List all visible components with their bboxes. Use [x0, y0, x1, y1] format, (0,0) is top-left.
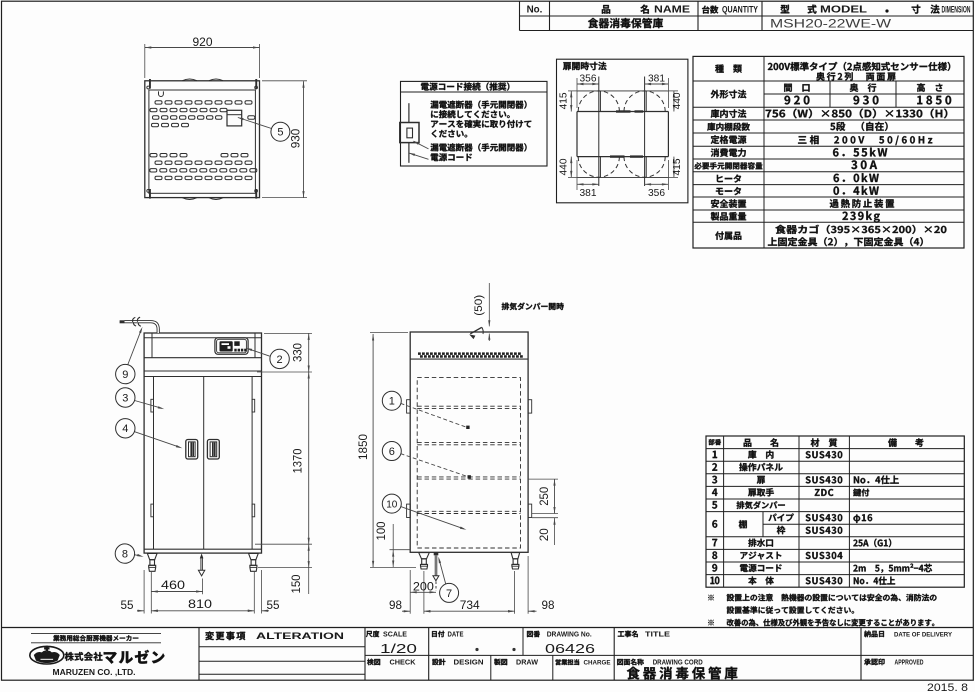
- svg-text:3: 3: [122, 392, 128, 404]
- svg-text:415: 415: [671, 158, 683, 175]
- svg-text:440: 440: [557, 158, 569, 175]
- svg-text:MARUZEN CO. ,LTD.: MARUZEN CO. ,LTD.: [53, 668, 136, 677]
- svg-text:356: 356: [648, 187, 665, 199]
- svg-text:6: 6: [389, 446, 395, 458]
- svg-text:250: 250: [537, 486, 551, 505]
- svg-text:SCALE: SCALE: [383, 630, 407, 639]
- svg-text:DIMENSION: DIMENSION: [942, 5, 971, 15]
- svg-text:CHARGE: CHARGE: [584, 660, 612, 667]
- svg-text:06426: 06426: [545, 641, 595, 656]
- svg-text:ALTERATION: ALTERATION: [256, 631, 344, 642]
- svg-text:QUANTITY: QUANTITY: [722, 5, 758, 15]
- svg-text:8: 8: [122, 549, 128, 561]
- svg-text:20: 20: [537, 528, 551, 541]
- svg-text:DATE OF DELIVERY: DATE OF DELIVERY: [894, 632, 952, 639]
- svg-text:No.: No.: [527, 5, 543, 16]
- svg-text:9: 9: [122, 369, 128, 381]
- svg-text:CHECK: CHECK: [390, 658, 417, 667]
- svg-text:2015. 8: 2015. 8: [927, 682, 968, 692]
- svg-text:MSH20-22WE-W: MSH20-22WE-W: [770, 17, 891, 31]
- svg-text:1/20: 1/20: [380, 641, 417, 656]
- svg-text:NAME: NAME: [654, 4, 690, 16]
- svg-text:DRAWING CORD: DRAWING CORD: [653, 658, 703, 667]
- svg-text:DESIGN: DESIGN: [454, 658, 484, 667]
- svg-text:7: 7: [446, 588, 452, 600]
- svg-text:330: 330: [291, 343, 305, 362]
- svg-text:55: 55: [121, 598, 134, 612]
- svg-text:1850: 1850: [356, 434, 370, 460]
- svg-text:381: 381: [580, 187, 597, 199]
- svg-text:356: 356: [580, 73, 597, 85]
- svg-text:930: 930: [288, 128, 302, 148]
- svg-text:415: 415: [557, 92, 569, 109]
- svg-text:1370: 1370: [291, 448, 305, 473]
- svg-text:DRAW: DRAW: [516, 658, 538, 667]
- svg-text:100: 100: [374, 521, 388, 540]
- svg-text:810: 810: [188, 597, 212, 611]
- svg-text:DATE: DATE: [448, 630, 464, 639]
- svg-text:440: 440: [671, 92, 683, 109]
- svg-text:98: 98: [542, 598, 555, 612]
- svg-text:(50): (50): [473, 295, 485, 316]
- svg-text:1: 1: [389, 396, 395, 408]
- svg-text:2: 2: [277, 354, 283, 366]
- svg-text:55: 55: [267, 598, 280, 612]
- svg-text:200: 200: [413, 580, 434, 594]
- svg-text:98: 98: [389, 598, 402, 612]
- svg-text:APPROVED: APPROVED: [895, 658, 924, 667]
- svg-text:4: 4: [122, 423, 128, 435]
- svg-text:10: 10: [386, 500, 398, 511]
- svg-text:734: 734: [460, 598, 480, 612]
- svg-text:5: 5: [277, 127, 283, 139]
- svg-text:DRAWING No.: DRAWING No.: [547, 630, 592, 639]
- svg-text:381: 381: [648, 73, 665, 85]
- svg-text:150: 150: [289, 574, 303, 593]
- svg-text:MODEL: MODEL: [820, 4, 868, 16]
- svg-text:460: 460: [161, 578, 185, 592]
- svg-text:TITLE: TITLE: [645, 630, 670, 639]
